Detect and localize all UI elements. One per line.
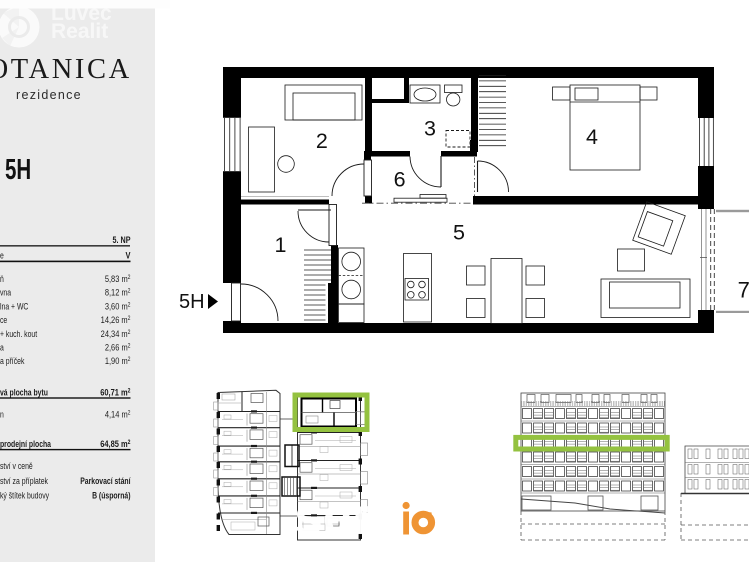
- svg-text:e: e: [0, 251, 4, 261]
- svg-text:ký štítek budovy: ký štítek budovy: [0, 491, 49, 501]
- svg-text:5,83 m2: 5,83 m2: [105, 274, 131, 284]
- svg-text:V: V: [126, 251, 131, 261]
- svg-text:24,34 m2: 24,34 m2: [101, 329, 131, 339]
- svg-text:5: 5: [453, 220, 465, 244]
- svg-text:lna + WC: lna + WC: [0, 302, 29, 312]
- svg-text:7: 7: [738, 277, 749, 302]
- svg-text:3: 3: [424, 116, 436, 140]
- svg-text:B (úsporná): B (úsporná): [92, 491, 131, 501]
- svg-text:a příček: a příček: [0, 356, 24, 366]
- svg-text:Parkovací stání: Parkovací stání: [80, 476, 131, 486]
- svg-text:ství za příplatek: ství za příplatek: [0, 476, 48, 486]
- svg-text:ce: ce: [0, 315, 8, 325]
- svg-text:+ kuch. kout: + kuch. kout: [0, 329, 38, 339]
- svg-text:8,12 m2: 8,12 m2: [105, 288, 131, 298]
- svg-text:BOTANICA: BOTANICA: [0, 54, 132, 85]
- svg-text:5H: 5H: [179, 291, 205, 313]
- svg-text:5. NP: 5. NP: [112, 235, 131, 245]
- svg-text:1: 1: [275, 233, 287, 257]
- svg-text:vá plocha bytu: vá plocha bytu: [0, 388, 48, 398]
- svg-text:a: a: [0, 343, 4, 353]
- svg-text:serv: serv: [294, 488, 401, 546]
- svg-text:6: 6: [394, 168, 406, 192]
- svg-text:1,90 m2: 1,90 m2: [105, 357, 131, 367]
- svg-text:ň: ň: [0, 274, 4, 284]
- svg-text:ství v ceně: ství v ceně: [0, 461, 33, 471]
- svg-text:5H: 5H: [5, 155, 31, 186]
- svg-text:4,14 m2: 4,14 m2: [105, 410, 131, 420]
- svg-text:n: n: [0, 410, 4, 420]
- svg-text:prodejní plocha: prodejní plocha: [0, 439, 52, 449]
- svg-text:2: 2: [316, 129, 328, 153]
- svg-text:60,71 m2: 60,71 m2: [100, 388, 130, 398]
- svg-text:64,85 m2: 64,85 m2: [100, 439, 130, 449]
- svg-text:Realit: Realit: [51, 20, 108, 43]
- svg-text:2,66 m2: 2,66 m2: [105, 343, 131, 353]
- svg-text:14,26 m2: 14,26 m2: [101, 316, 131, 326]
- svg-text:3,60 m2: 3,60 m2: [105, 302, 131, 312]
- svg-text:rezidence: rezidence: [16, 88, 82, 102]
- svg-text:vna: vna: [0, 288, 12, 298]
- svg-text:4: 4: [586, 125, 598, 149]
